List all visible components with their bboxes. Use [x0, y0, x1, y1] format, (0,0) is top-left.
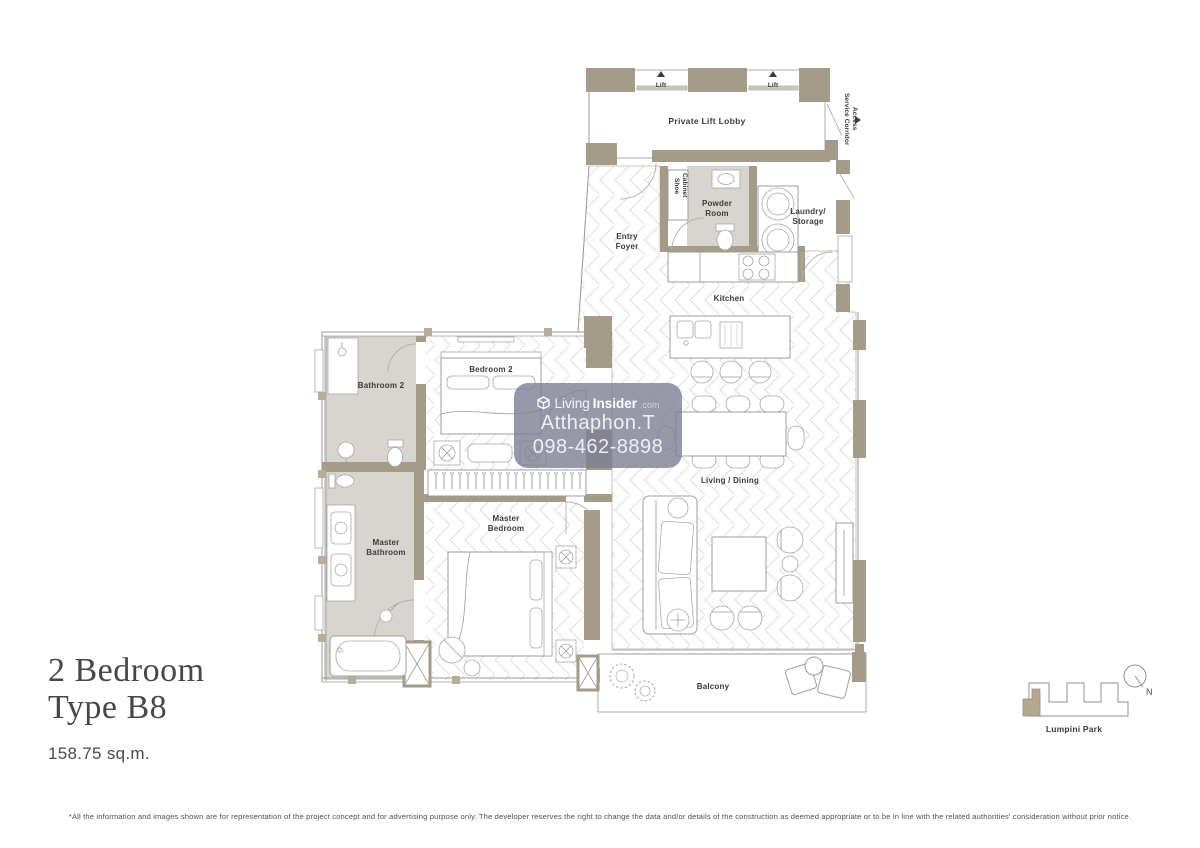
toilet-tank: [329, 474, 335, 488]
bedroom2-label: Bedroom 2: [469, 365, 513, 374]
hand-shower: [380, 610, 392, 622]
brand-insider: Insider: [593, 396, 637, 411]
shoe-label-1: Shoe: [673, 178, 680, 195]
burner: [759, 269, 769, 279]
unit-area: 158.75 sq.m.: [48, 744, 205, 764]
dining-table: [676, 412, 786, 456]
shower: [328, 338, 358, 394]
toilet-bowl: [388, 448, 403, 467]
watermark: LivingInsider.com Atthaphon.T 098-462-88…: [514, 383, 682, 468]
window-frame: [838, 236, 852, 282]
service-corridor-label: Service Corridor: [843, 93, 850, 146]
column-x: [404, 642, 430, 686]
agent-name: Atthaphon.T: [541, 412, 655, 435]
powder-label-2: Room: [705, 209, 728, 218]
toilet-tank: [388, 440, 403, 447]
disclaimer-text: *All the information and images shown ar…: [0, 812, 1200, 821]
sofa: [643, 496, 697, 634]
pillow: [530, 608, 542, 648]
service-door-leaf: [827, 104, 842, 136]
pillow: [530, 560, 542, 600]
washer-drum: [767, 193, 789, 215]
ceiling-light: [458, 337, 514, 342]
powder-sink: [718, 174, 734, 185]
bathtub-basin: [336, 641, 400, 671]
master-bath-label-2: Bathroom: [366, 548, 405, 557]
burner: [759, 256, 769, 266]
bar-stools: [691, 361, 771, 383]
armchair: [439, 637, 465, 663]
wardrobe-hangers: [430, 472, 584, 494]
compass-north-label: N: [1146, 687, 1153, 697]
powder-label-1: Powder: [702, 199, 732, 208]
side-table: [782, 556, 798, 572]
bench: [468, 444, 512, 462]
faucet: [684, 341, 688, 345]
kitchen-label: Kitchen: [714, 294, 745, 303]
tv-console: [836, 523, 853, 603]
basin: [338, 442, 354, 458]
lift-label: Lift: [656, 82, 667, 89]
window-frame: [315, 596, 323, 630]
foyer-label-2: Foyer: [616, 242, 639, 251]
key-plan: N Lumpini Park: [1023, 665, 1153, 734]
building-outline: [1029, 683, 1128, 716]
balcony-items: [610, 657, 851, 701]
brand-cube-icon: [536, 395, 551, 410]
plant: [610, 664, 634, 688]
master-bed-label-1: Master: [493, 514, 520, 523]
balcony-table: [805, 657, 823, 675]
column-x: [578, 656, 598, 690]
window-frame: [315, 350, 323, 392]
laundry-label-2: Storage: [792, 217, 824, 226]
pillow: [447, 376, 489, 389]
laundry-service-door-leaf: [840, 174, 854, 198]
lift-label: Lift: [768, 82, 779, 89]
dryer-drum: [767, 229, 789, 251]
lobby-label: Private Lift Lobby: [668, 116, 745, 126]
toilet-bowl: [336, 475, 354, 487]
laundry-label-1: Laundry/: [790, 207, 826, 216]
window-frame: [315, 488, 323, 548]
unit-title-line1: 2 Bedroom: [48, 652, 205, 689]
tub-faucet: [338, 648, 342, 652]
unit-title-line2: Type B8: [48, 689, 205, 726]
coffee-table: [712, 537, 766, 591]
master-bath-label-1: Master: [373, 538, 400, 547]
living-label: Living / Dining: [701, 476, 759, 485]
master-bed-label-2: Bedroom: [488, 524, 525, 533]
side-table: [464, 660, 480, 676]
brand-living: Living: [554, 396, 589, 411]
foyer-label-1: Entry: [616, 232, 638, 241]
balcony-label: Balcony: [697, 682, 730, 691]
plant: [635, 681, 655, 701]
burner: [743, 256, 753, 266]
shower-head: [338, 348, 346, 356]
sofa-side-table: [668, 498, 688, 518]
compass-needle: [1135, 676, 1143, 687]
burner: [743, 269, 753, 279]
brand-tld: .com: [640, 400, 660, 410]
island-sink: [695, 321, 711, 338]
bathroom2-label: Bathroom 2: [358, 381, 405, 390]
shoe-label-2: Cabinet: [681, 173, 688, 198]
keyplan-park-label: Lumpini Park: [1046, 724, 1102, 734]
headboard: [441, 352, 541, 358]
island-sink: [677, 321, 693, 338]
title-block: 2 Bedroom Type B8 158.75 sq.m.: [48, 652, 205, 764]
agent-phone: 098-462-8898: [533, 436, 664, 459]
kitchen-counter: [668, 252, 798, 282]
headboard: [544, 552, 552, 656]
watermark-brand: LivingInsider.com: [536, 393, 659, 411]
toilet-bowl: [717, 230, 733, 250]
